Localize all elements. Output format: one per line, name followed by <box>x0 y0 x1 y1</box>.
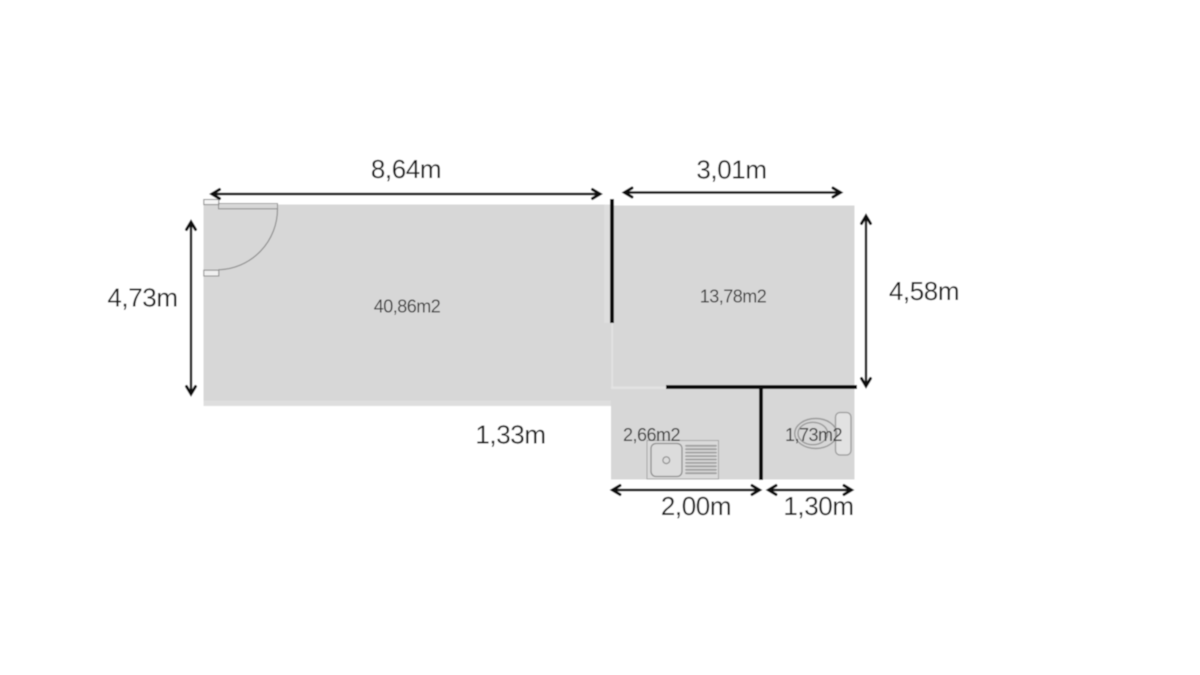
svg-text:1,73m2: 1,73m2 <box>785 425 843 445</box>
svg-text:3,01m: 3,01m <box>696 155 766 185</box>
svg-text:40,86m2: 40,86m2 <box>374 297 441 317</box>
svg-text:1,33m: 1,33m <box>475 420 545 450</box>
svg-text:8,64m: 8,64m <box>371 154 441 184</box>
svg-text:2,66m2: 2,66m2 <box>623 425 681 445</box>
svg-text:4,58m: 4,58m <box>889 276 959 306</box>
svg-text:13,78m2: 13,78m2 <box>700 287 767 307</box>
svg-text:2,00m: 2,00m <box>661 491 731 521</box>
svg-text:1,30m: 1,30m <box>783 491 853 521</box>
svg-text:4,73m: 4,73m <box>107 283 177 313</box>
